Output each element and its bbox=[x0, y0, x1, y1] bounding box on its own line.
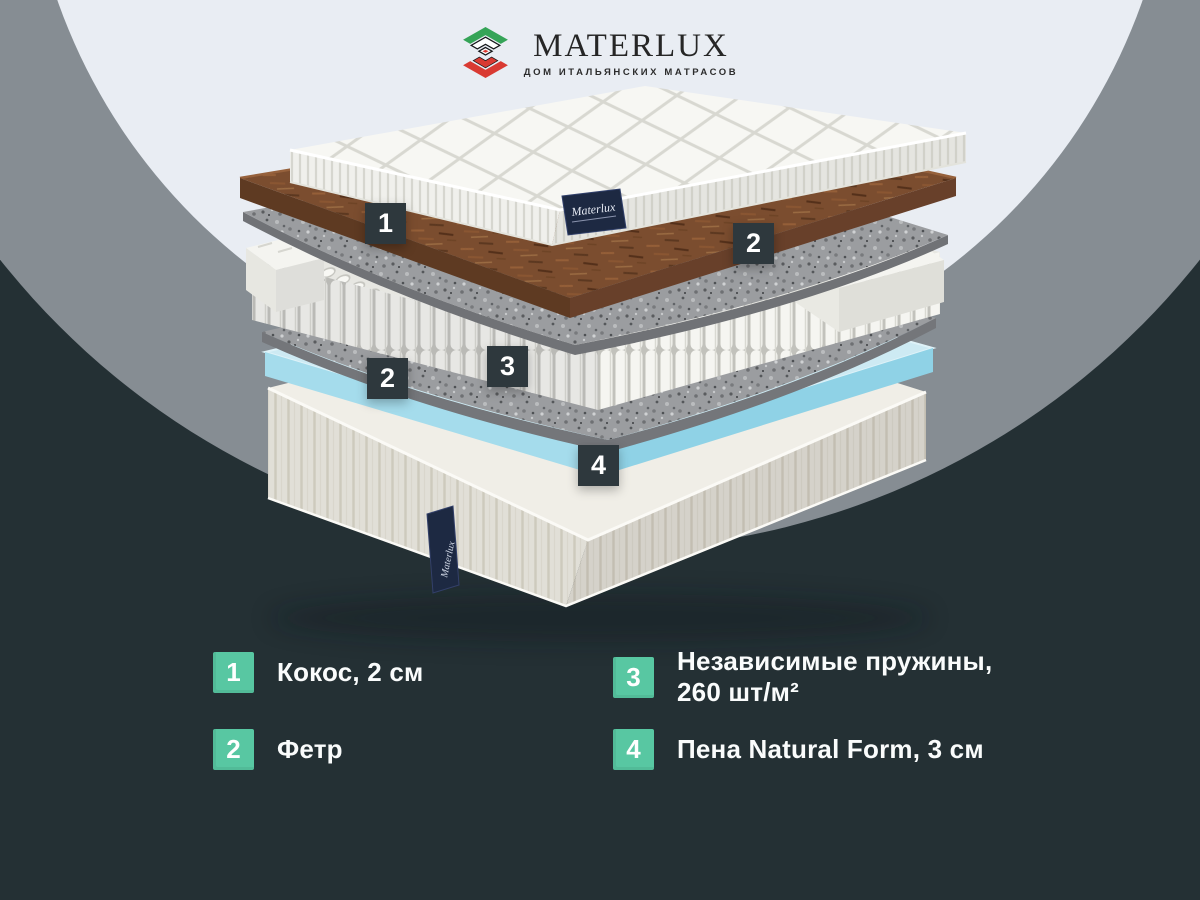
brand-name: MATERLUX bbox=[533, 28, 729, 64]
legend-badge-2: 2 bbox=[213, 729, 254, 770]
ground-shadow bbox=[270, 594, 930, 642]
layer-marker-1: 1 bbox=[365, 203, 406, 244]
legend-item-2: 2 Фетр bbox=[213, 729, 343, 770]
brand-tagline: ДОМ ИТАЛЬЯНСКИХ МАТРАСОВ bbox=[524, 67, 739, 78]
legend-label-3: Независимые пружины, bbox=[677, 646, 992, 677]
layer-marker-2-lower: 2 bbox=[367, 358, 408, 399]
legend-badge-3: 3 bbox=[613, 657, 654, 698]
legend-badge-1: 1 bbox=[213, 652, 254, 693]
materlux-diamond-logo-icon bbox=[462, 26, 509, 79]
layer-marker-2-upper: 2 bbox=[733, 223, 774, 264]
base-label-tag: Materlux bbox=[427, 506, 459, 593]
legend-label-4: Пена Natural Form, 3 см bbox=[677, 734, 984, 765]
layer-marker-3: 3 bbox=[487, 346, 528, 387]
legend-badge-4: 4 bbox=[613, 729, 654, 770]
quilt-label-tag: Materlux bbox=[562, 189, 626, 235]
legend-label-2: Фетр bbox=[277, 734, 343, 765]
layer-marker-4: 4 bbox=[578, 445, 619, 486]
legend-item-4: 4 Пена Natural Form, 3 см bbox=[613, 729, 984, 770]
legend-label-3-line2: 260 шт/м² bbox=[677, 677, 992, 708]
legend-label-1: Кокос, 2 см bbox=[277, 657, 423, 688]
legend-item-3: 3 Независимые пружины, 260 шт/м² bbox=[613, 646, 992, 708]
legend-item-1: 1 Кокос, 2 см bbox=[213, 652, 423, 693]
logo: MATERLUX ДОМ ИТАЛЬЯНСКИХ МАТРАСОВ bbox=[0, 26, 1200, 79]
